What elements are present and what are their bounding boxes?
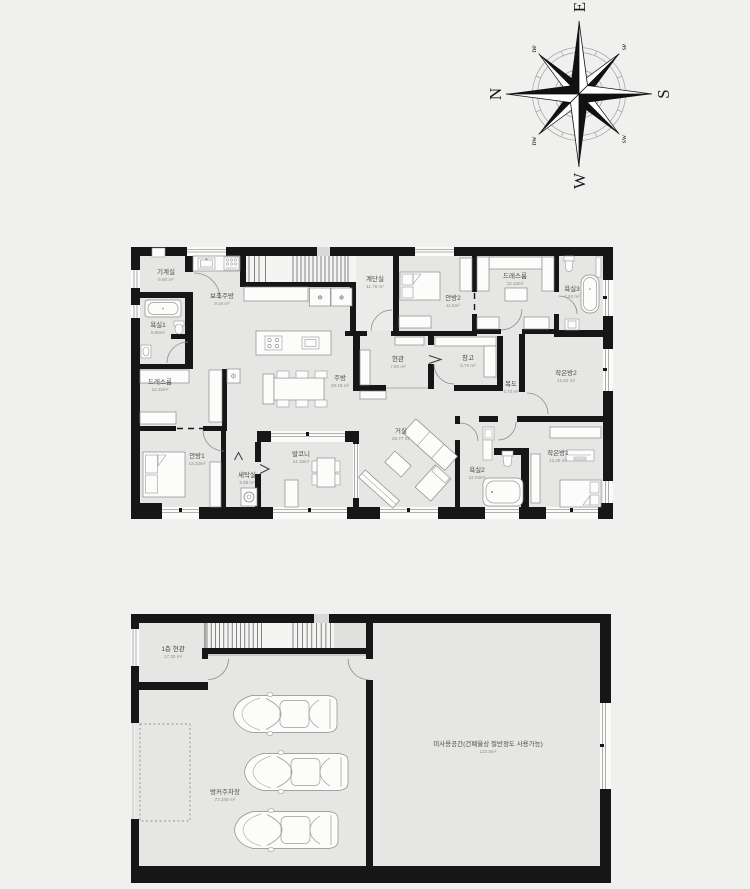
svg-text:거실: 거실 xyxy=(395,426,407,435)
svg-text:세탁실: 세탁실 xyxy=(238,470,256,479)
svg-text:5.96m²: 5.96m² xyxy=(151,330,166,335)
svg-text:12.32m²: 12.32m² xyxy=(152,387,169,392)
svg-text:벙커주차장: 벙커주차장 xyxy=(210,787,240,796)
svg-text:복도: 복도 xyxy=(505,380,517,388)
svg-text:4.70 m²: 4.70 m² xyxy=(503,389,519,394)
svg-text:9.16 m²: 9.16 m² xyxy=(214,301,230,306)
svg-text:드레스룸: 드레스룸 xyxy=(148,377,172,386)
svg-text:25.77 m²: 25.77 m² xyxy=(392,436,411,441)
svg-text:12.04m²: 12.04m² xyxy=(469,475,486,480)
svg-text:창고: 창고 xyxy=(462,354,474,362)
svg-text:13.32m²: 13.32m² xyxy=(189,461,206,466)
svg-text:4.92 m²: 4.92 m² xyxy=(564,294,580,299)
svg-text:5.60 m²: 5.60 m² xyxy=(158,277,174,282)
svg-text:7.60 m²: 7.60 m² xyxy=(390,364,406,369)
svg-text:작은방2: 작은방2 xyxy=(555,368,577,377)
svg-text:N: N xyxy=(486,88,505,100)
svg-text:기계실: 기계실 xyxy=(157,267,175,276)
svg-text:욕실1: 욕실1 xyxy=(150,320,166,329)
svg-text:❄: ❄ xyxy=(339,294,345,302)
svg-text:S: S xyxy=(654,89,673,98)
svg-text:ne: ne xyxy=(529,45,538,53)
svg-text:현관: 현관 xyxy=(392,354,404,363)
svg-text:13.28 m²: 13.28 m² xyxy=(549,458,568,463)
svg-text:보조주방: 보조주방 xyxy=(210,291,234,300)
svg-text:안방2: 안방2 xyxy=(445,293,461,302)
svg-text:3.38 m²: 3.38 m² xyxy=(239,480,255,485)
svg-text:nw: nw xyxy=(529,136,538,146)
svg-text:발코니: 발코니 xyxy=(292,449,310,458)
svg-text:E: E xyxy=(570,2,589,12)
svg-text:❄: ❄ xyxy=(317,294,323,302)
svg-text:작은방1: 작은방1 xyxy=(547,448,569,457)
svg-text:안방1: 안방1 xyxy=(189,451,205,460)
svg-text:11.5m²: 11.5m² xyxy=(446,303,460,308)
svg-text:17.30 m²: 17.30 m² xyxy=(164,654,183,659)
svg-text:14.15m²: 14.15m² xyxy=(293,459,310,464)
svg-text:se: se xyxy=(619,43,628,50)
svg-text:40.19 m²: 40.19 m² xyxy=(331,383,350,388)
svg-text:72.348 m²: 72.348 m² xyxy=(215,797,236,802)
svg-text:12.34m²: 12.34m² xyxy=(507,281,524,286)
svg-text:계단실: 계단실 xyxy=(366,274,384,283)
svg-text:122.5m²: 122.5m² xyxy=(480,749,497,754)
svg-text:11.79 m²: 11.79 m² xyxy=(366,284,384,289)
svg-text:드레스룸: 드레스룸 xyxy=(503,271,527,280)
svg-text:주방: 주방 xyxy=(334,373,346,382)
svg-text:1층 현관: 1층 현관 xyxy=(161,644,184,653)
svg-text:미사용공간(건폐율상 절반정도 사용가능): 미사용공간(건폐율상 절반정도 사용가능) xyxy=(433,739,543,748)
svg-text:sw: sw xyxy=(619,134,628,143)
svg-text:욕실3: 욕실3 xyxy=(564,284,580,293)
svg-text:W: W xyxy=(570,172,589,189)
svg-text:욕실2: 욕실2 xyxy=(469,465,485,474)
svg-text:12.92 m²: 12.92 m² xyxy=(557,378,576,383)
svg-text:6.70 m²: 6.70 m² xyxy=(460,363,476,368)
